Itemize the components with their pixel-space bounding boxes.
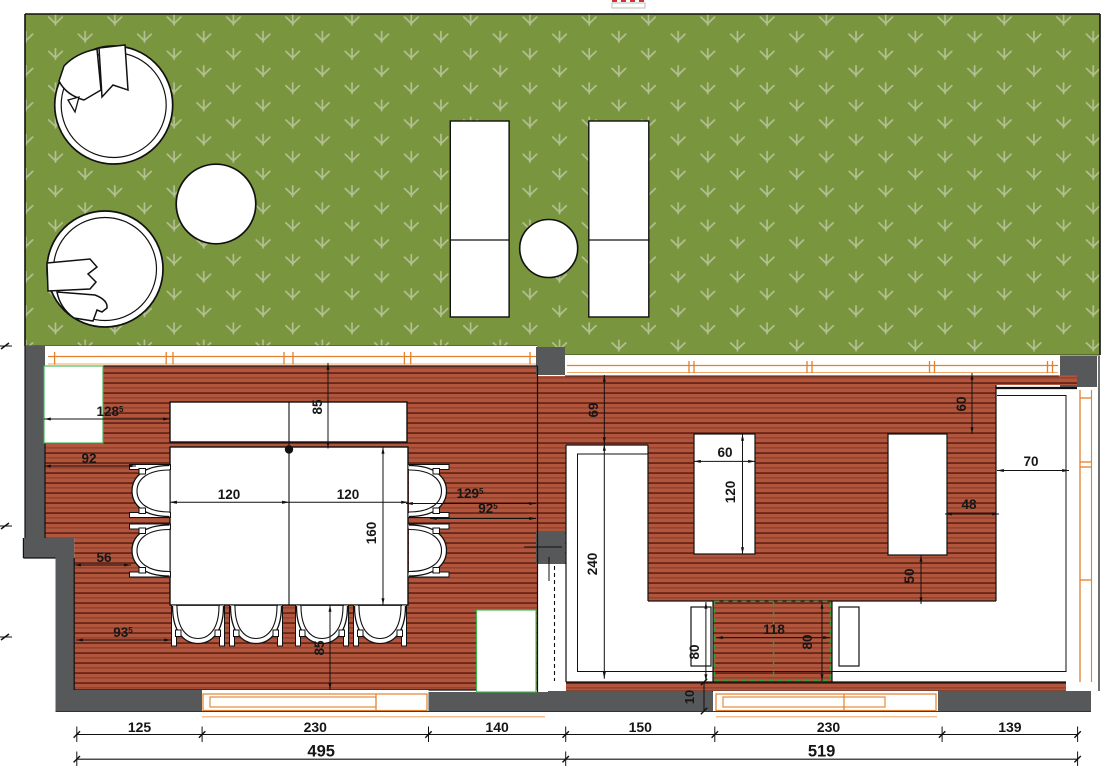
- svg-text:48: 48: [961, 497, 977, 512]
- svg-text:120: 120: [337, 487, 360, 502]
- svg-text:56: 56: [96, 550, 112, 565]
- svg-text:60: 60: [717, 445, 732, 460]
- svg-text:80: 80: [687, 644, 702, 659]
- svg-text:125: 125: [128, 719, 152, 735]
- svg-text:120: 120: [723, 481, 738, 504]
- svg-text:10: 10: [682, 690, 697, 704]
- svg-text:50: 50: [902, 568, 917, 583]
- svg-text:230: 230: [304, 719, 328, 735]
- svg-text:495: 495: [307, 743, 335, 761]
- svg-text:85: 85: [310, 399, 325, 415]
- svg-text:69: 69: [586, 402, 601, 417]
- svg-text:230: 230: [817, 719, 841, 735]
- svg-text:160: 160: [364, 522, 379, 545]
- svg-text:60: 60: [954, 396, 969, 411]
- svg-text:519: 519: [808, 743, 836, 761]
- svg-text:150: 150: [629, 719, 653, 735]
- svg-text:139: 139: [998, 719, 1022, 735]
- svg-text:70: 70: [1023, 454, 1038, 469]
- svg-text:140: 140: [485, 719, 509, 735]
- svg-text:118: 118: [763, 622, 785, 637]
- svg-text:240: 240: [585, 553, 600, 576]
- svg-text:120: 120: [218, 487, 241, 502]
- svg-text:80: 80: [800, 634, 815, 649]
- svg-text:85: 85: [312, 640, 327, 656]
- svg-text:92: 92: [81, 451, 96, 466]
